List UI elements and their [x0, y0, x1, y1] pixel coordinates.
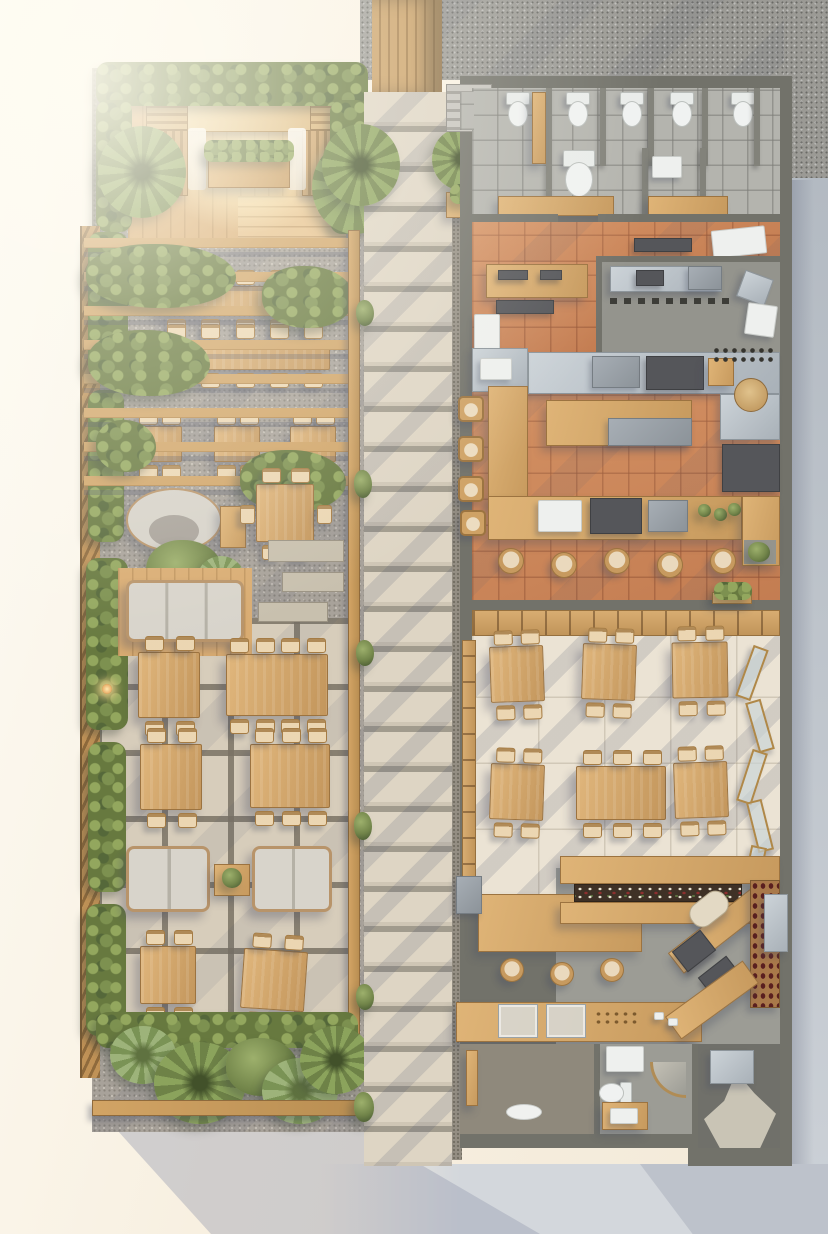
restroom-sink [652, 156, 682, 178]
path-bush-1 [356, 300, 374, 326]
chair [256, 638, 275, 653]
chair [493, 630, 513, 646]
communal-stool-2 [550, 962, 574, 986]
kitchen-toaster [592, 356, 640, 388]
bar-inset-plant [748, 542, 770, 562]
wine-back-counter [560, 856, 780, 884]
terrace-table-b1 [140, 744, 202, 810]
terrace-table-a1 [138, 652, 200, 718]
kitchen-pot-rack [712, 346, 776, 364]
dining-table-r1c2-top [581, 643, 637, 701]
chair [178, 728, 197, 743]
chair [174, 930, 193, 945]
chair [643, 823, 662, 838]
toilet-3 [618, 92, 644, 126]
kitchen-round-board [734, 378, 768, 412]
terrace-sofa-left [126, 846, 210, 912]
bar-chair-1 [458, 396, 484, 422]
wc-sink [610, 1108, 638, 1124]
path-bush-2 [354, 470, 372, 498]
storage-tub [506, 1104, 542, 1120]
restroom-vanity-2 [648, 196, 728, 216]
terrace-table-a1-top [138, 652, 200, 718]
bar-stool-1 [498, 548, 524, 574]
chair [282, 728, 301, 743]
hedge-left-4 [88, 742, 126, 892]
chair [284, 935, 304, 951]
toilet-4 [668, 92, 694, 126]
dining-table-r2c1-top [489, 763, 545, 821]
terrace-table-c2-top [240, 948, 308, 1012]
backroom-appliance [710, 1050, 754, 1084]
dining-table-r2c3-top [673, 761, 729, 819]
lounge-table-top [256, 484, 314, 542]
room-wall-2 [692, 1044, 698, 1094]
top-fence [372, 0, 442, 94]
chair [281, 638, 300, 653]
chair [677, 626, 696, 641]
restroom-shelf [532, 92, 546, 164]
boh-sink [636, 270, 664, 286]
chair [291, 468, 310, 483]
toilet-2 [564, 92, 590, 126]
storage-plank [466, 1050, 478, 1106]
paver-slab-2 [282, 572, 344, 592]
wc-washer [606, 1046, 644, 1072]
dining-table-r1c3-top [672, 642, 729, 699]
chair [146, 930, 165, 945]
chair [262, 468, 281, 483]
communal-stool-3 [600, 958, 624, 982]
boh-machine-2 [744, 302, 778, 338]
chair [178, 813, 197, 828]
garden-palm-2 [300, 1026, 372, 1094]
pergola-vine-3 [88, 330, 210, 396]
chair [282, 811, 301, 826]
bus-station [456, 876, 482, 914]
bar-chair-4 [460, 510, 486, 536]
entry-hedge-top [96, 62, 368, 106]
restroom-bottom-wall-2 [598, 214, 780, 222]
toilet-5-bowl [733, 101, 754, 127]
path-bush-4 [354, 812, 372, 840]
dining-table-r2c2-top [576, 766, 666, 820]
toilet-accessible [560, 150, 596, 196]
chair [145, 636, 164, 651]
kitchen-island-hood [608, 418, 692, 446]
stall-wall-2 [600, 88, 606, 166]
restroom-door-gap [460, 92, 474, 130]
boh-machine [688, 266, 722, 290]
restroom-vanity-1 [498, 196, 614, 216]
chair [704, 745, 724, 761]
kitchen-stove [646, 356, 704, 390]
terrace-table-c1-top [140, 946, 196, 1004]
kitchen-bar-left [488, 386, 528, 504]
chair [493, 822, 513, 838]
chair [588, 627, 608, 643]
dining-left-door-frames [462, 640, 476, 892]
chair [612, 703, 632, 719]
chair [707, 820, 727, 836]
chair [496, 747, 516, 763]
restaurant-floor-plan [0, 0, 828, 1234]
storage-room-floor [460, 1044, 594, 1134]
prep-console [496, 300, 554, 314]
paver-slab-1 [268, 540, 344, 562]
chair [613, 750, 632, 765]
toilet-1 [504, 92, 530, 126]
bar-herb-1 [698, 504, 711, 517]
paver-slab-3 [258, 602, 328, 622]
chair [677, 746, 697, 762]
toilet-3-bowl [622, 101, 643, 127]
bar-stool-5 [710, 548, 736, 574]
building-cast-shadow-right [792, 180, 814, 1164]
bar-chair-3 [458, 476, 484, 502]
bar-appliance-steel [648, 500, 688, 532]
chair [252, 932, 272, 948]
bar-espresso-machine [590, 498, 642, 534]
toilet-1-bowl [508, 101, 529, 127]
chair [147, 813, 166, 828]
bar-cup-1 [654, 1012, 664, 1020]
toilet-2-bowl [568, 101, 589, 127]
chair [613, 823, 632, 838]
dining-table-r1c1-top [489, 645, 545, 703]
chair [317, 505, 332, 524]
chair [147, 728, 166, 743]
pastry-case-2 [546, 1004, 586, 1038]
path-bush-6 [354, 1092, 374, 1122]
boh-floor-mat [610, 298, 732, 304]
terrace-table-a2-top [226, 654, 328, 716]
terrace-table-b1-top [140, 744, 202, 810]
divider-planter [714, 582, 752, 600]
chair [230, 638, 249, 653]
chair [520, 823, 540, 839]
stall-wall-5 [754, 88, 760, 166]
toilet-5 [729, 92, 755, 126]
walkway [364, 92, 452, 1166]
lounge-sofa [126, 580, 244, 642]
chair [523, 748, 543, 764]
chair [615, 628, 635, 644]
chair [308, 728, 327, 743]
terrace-side-rail [348, 230, 360, 1052]
kitchen-walkin-box [722, 444, 780, 492]
chair [583, 823, 602, 838]
terrace-table-c1 [140, 946, 196, 1004]
dining-table-r2c2 [576, 766, 666, 820]
entry-planter-plants [204, 140, 294, 162]
chair [680, 821, 700, 837]
bar-chair-2 [458, 436, 484, 462]
entry-slat-left [146, 102, 188, 130]
wine-fridge [764, 894, 788, 952]
chair [307, 638, 326, 653]
dining-table-r1c2 [581, 643, 637, 701]
path-bush-3 [356, 640, 374, 666]
chair [240, 505, 255, 524]
chair [255, 728, 274, 743]
chair [583, 750, 602, 765]
chair [706, 701, 725, 716]
dining-table-r2c1 [489, 763, 545, 821]
terrace-sofa-right [252, 846, 332, 912]
communal-stool-1 [500, 958, 524, 982]
chair [678, 701, 697, 716]
restroom-bottom-wall-1 [472, 214, 558, 222]
terrace-table-c2 [240, 948, 308, 1012]
pergola-vine-5 [96, 420, 156, 472]
dining-table-r2c3 [673, 761, 729, 819]
pergola-vine-2 [262, 266, 354, 328]
bar-herb-2 [714, 508, 727, 521]
chair [643, 750, 662, 765]
pastry-tray [594, 1010, 640, 1026]
lounge-table [256, 484, 314, 542]
chair [230, 719, 249, 734]
coffee-table-plant [222, 868, 242, 888]
terrace-table-a2 [226, 654, 328, 716]
chair [520, 629, 540, 645]
terrace-table-b2 [250, 744, 330, 808]
corridor-vent [634, 238, 692, 252]
dining-table-r1c3 [672, 642, 729, 699]
bar-stool-2 [551, 552, 577, 578]
entry-curtain-left [188, 128, 206, 190]
building-shell-right-ext [688, 1148, 792, 1166]
bar-cup-2 [668, 1018, 678, 1026]
prep-item-1 [498, 270, 528, 280]
path-bush-5 [356, 984, 374, 1010]
wc-toilet-bowl [599, 1083, 624, 1102]
toilet-4-bowl [672, 101, 693, 127]
toilet-accessible-bowl [565, 162, 593, 197]
bar-stool-4 [657, 552, 683, 578]
pastry-case-1 [498, 1004, 538, 1038]
walkway-palm [322, 124, 400, 206]
chair [308, 811, 327, 826]
stall-wall-3 [648, 88, 654, 166]
terrace-table-b2-top [250, 744, 330, 808]
kitchen-sink-left [480, 358, 512, 380]
dining-table-r1c1 [489, 645, 545, 703]
chair [585, 702, 605, 718]
prep-fridge [474, 314, 500, 352]
pergola-vine-1 [86, 244, 236, 308]
ice-machine [711, 225, 768, 258]
terrace-lantern [102, 684, 112, 694]
bar-appliance-white [538, 500, 582, 532]
chair [496, 705, 516, 721]
bar-stool-3 [604, 548, 630, 574]
chair [176, 636, 195, 651]
chair [523, 704, 543, 720]
palm-entry-left [98, 126, 186, 218]
bar-herb-3 [728, 503, 741, 516]
prep-item-2 [540, 270, 562, 280]
chair [255, 811, 274, 826]
chair [705, 626, 724, 641]
wc-toilet [600, 1080, 632, 1104]
terrace-bottom-wall [92, 1100, 360, 1116]
